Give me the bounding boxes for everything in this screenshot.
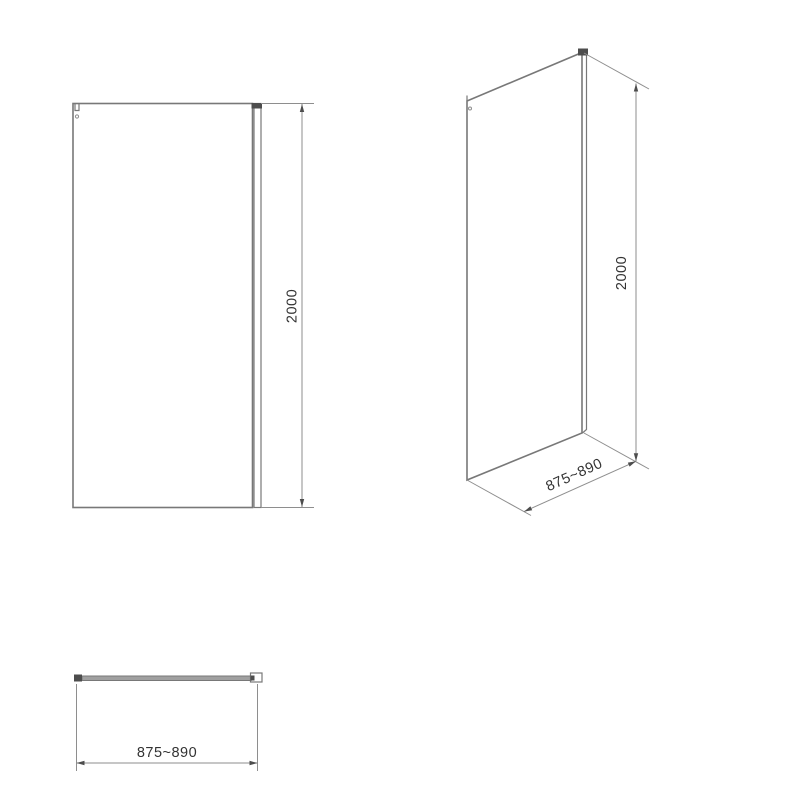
plan-width-dimension-label: 875~890 [137,745,197,761]
glass-end-in-profile-plan [251,676,255,681]
dim-arrow-right-icon [628,461,636,466]
mounting-hole-front [75,115,78,118]
plan-width-dimension: 875~890 [77,684,258,771]
extension-line-left [467,480,531,516]
perspective-height-dimension: 2000 [584,53,649,461]
glass-panel-perspective [467,53,582,481]
technical-drawing-canvas: 2000 2000 875~890 [0,0,800,800]
front-view: 2000 [73,103,314,508]
shower-panel-technical-drawing: 2000 2000 875~890 [0,0,800,800]
wall-profile-cap-front [252,103,263,109]
wall-profile-perspective [583,56,587,434]
end-cap-plan [74,675,82,682]
perspective-height-dimension-label: 2000 [614,256,630,290]
dim-arrow-down-icon [300,499,304,507]
dim-arrow-right-icon [250,761,258,765]
dim-arrow-left-icon [524,506,532,511]
front-height-dimension: 2000 [261,104,314,508]
mounting-hole-perspective [469,107,472,110]
glass-panel-plan [82,676,251,681]
dim-arrow-up-icon [634,84,638,92]
plan-view: 875~890 [74,673,262,771]
perspective-width-dimension: 875~890 [467,433,649,516]
front-height-dimension-label: 2000 [285,289,301,323]
dim-arrow-left-icon [77,761,85,765]
glass-panel-front [73,104,253,508]
extension-line-top [584,53,649,89]
wall-profile-front [254,104,261,508]
dim-arrow-down-icon [634,453,638,461]
dim-arrow-up-icon [300,104,304,112]
perspective-view: 2000 875~890 [467,49,649,516]
mounting-notch-front [75,104,79,111]
